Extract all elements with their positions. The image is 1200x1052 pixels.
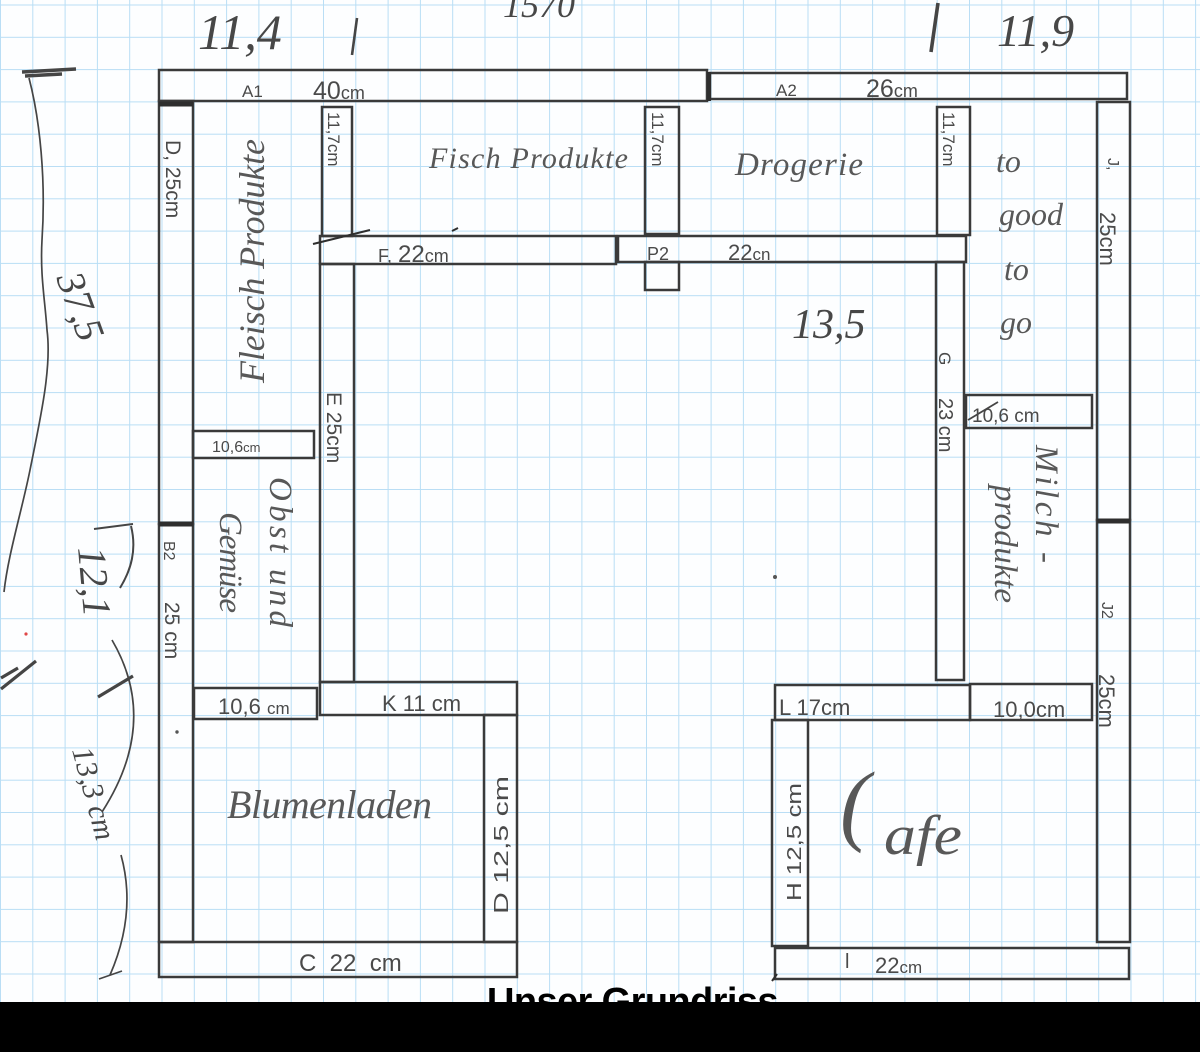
svg-text:G: G xyxy=(935,352,954,365)
svg-text:D, 25cm: D, 25cm xyxy=(161,140,184,218)
svg-text:good: good xyxy=(999,196,1064,232)
svg-text:11,9: 11,9 xyxy=(997,5,1074,56)
svg-text:K 11 cm: K 11 cm xyxy=(382,691,461,716)
svg-text:Milch -: Milch - xyxy=(1028,444,1064,563)
svg-text:11,7cm: 11,7cm xyxy=(324,112,343,167)
svg-text:1570: 1570 xyxy=(503,0,575,25)
svg-text:B2: B2 xyxy=(160,541,177,561)
svg-text:go: go xyxy=(1000,304,1032,340)
svg-text:L 17cm: L 17cm xyxy=(779,695,850,720)
svg-text:J,: J, xyxy=(1104,158,1121,170)
svg-text:11,7cm: 11,7cm xyxy=(648,112,667,167)
svg-text:afe: afe xyxy=(884,805,962,867)
svg-text:A1: A1 xyxy=(242,82,263,101)
svg-text:22cm: 22cm xyxy=(398,241,449,268)
svg-text:11,4: 11,4 xyxy=(198,4,282,60)
svg-text:25 cm: 25 cm xyxy=(160,602,183,659)
svg-text:C 22 cm: C 22 cm xyxy=(299,950,402,977)
svg-text:12,1: 12,1 xyxy=(69,545,120,619)
svg-text:J2: J2 xyxy=(1098,602,1115,619)
svg-text:to: to xyxy=(1004,251,1029,287)
svg-text:produkte: produkte xyxy=(987,483,1023,603)
svg-text:10,6cm: 10,6cm xyxy=(212,439,260,456)
svg-text:(: ( xyxy=(840,755,875,854)
svg-text:13,5: 13,5 xyxy=(792,302,866,348)
svg-text:F,: F, xyxy=(378,246,392,266)
svg-text:10,0cm: 10,0cm xyxy=(993,697,1065,722)
svg-text:A2: A2 xyxy=(776,81,797,100)
svg-text:D 12,5 cm: D 12,5 cm xyxy=(491,776,513,914)
svg-text:Drogerie: Drogerie xyxy=(734,147,863,183)
svg-text:11,7cm: 11,7cm xyxy=(939,112,958,167)
svg-text:Fisch Produkte: Fisch Produkte xyxy=(428,142,628,175)
svg-text:l: l xyxy=(845,951,849,973)
svg-text:23 cm: 23 cm xyxy=(934,398,956,452)
svg-text:10,6 cm: 10,6 cm xyxy=(972,406,1040,427)
svg-text:P2: P2 xyxy=(647,244,669,264)
svg-text:E 25cm: E 25cm xyxy=(322,392,345,463)
svg-text:to: to xyxy=(996,143,1021,179)
svg-text:Fleisch Produkte: Fleisch Produkte xyxy=(232,139,272,384)
svg-text:25cm: 25cm xyxy=(1094,674,1119,728)
svg-text:Blumenladen: Blumenladen xyxy=(227,782,432,827)
svg-text:Gemüse: Gemüse xyxy=(212,512,248,613)
svg-text:25cm: 25cm xyxy=(1095,212,1120,266)
svg-text:H 12,5 cm: H 12,5 cm xyxy=(784,783,806,901)
